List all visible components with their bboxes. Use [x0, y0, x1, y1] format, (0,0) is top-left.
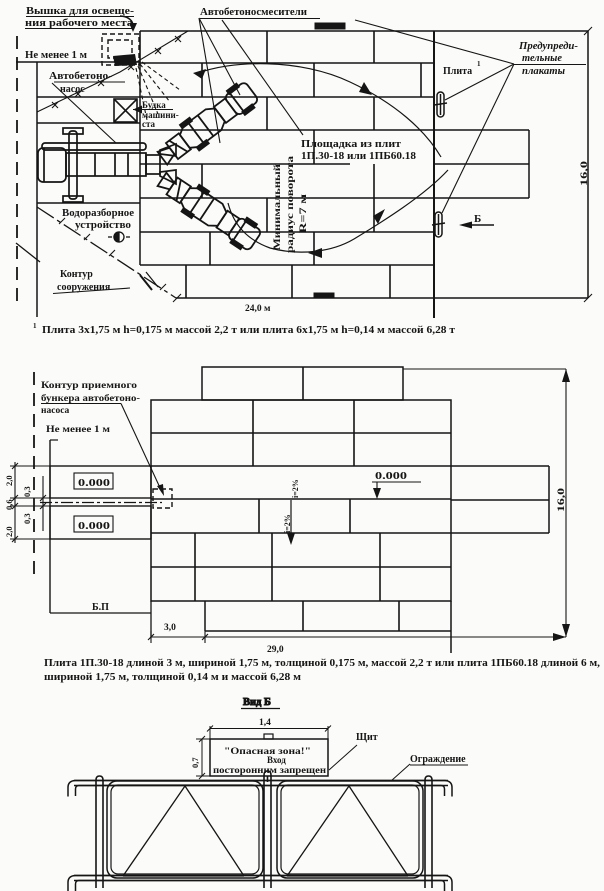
svg-text:3,0: 3,0 — [164, 623, 176, 633]
svg-text:тельные: тельные — [522, 53, 563, 64]
svg-text:Плита 3х1,75 м h=0,175 м массо: Плита 3х1,75 м h=0,175 м массой 2,2 т ил… — [42, 325, 455, 336]
svg-text:насоса: насоса — [41, 406, 70, 416]
svg-text:2,0: 2,0 — [4, 475, 14, 486]
svg-text:Контур приемного: Контур приемного — [41, 381, 137, 391]
svg-text:Площадка из плит: Площадка из плит — [301, 139, 401, 150]
svg-text:Предупреди-: Предупреди- — [518, 41, 578, 52]
svg-text:Контур: Контур — [60, 269, 93, 280]
svg-text:плакаты: плакаты — [522, 66, 565, 77]
svg-text:0,3: 0,3 — [22, 486, 32, 497]
svg-text:0,7: 0,7 — [190, 757, 200, 768]
svg-text:Автобетоносмесители: Автобетоносмесители — [200, 7, 307, 18]
svg-text:сооружения: сооружения — [57, 282, 111, 293]
svg-text:посторонним запрещен: посторонним запрещен — [213, 765, 326, 775]
svg-text:устройство: устройство — [75, 220, 131, 231]
svg-text:радиус поворота: радиус поворота — [286, 156, 296, 253]
svg-text:бункера автобетоно-: бункера автобетоно- — [41, 393, 140, 404]
svg-text:Вид Б: Вид Б — [243, 697, 271, 708]
svg-text:16,0: 16,0 — [580, 161, 590, 186]
svg-text:Щит: Щит — [356, 732, 378, 743]
svg-text:i=2%: i=2% — [291, 479, 300, 498]
svg-text:24,0 м: 24,0 м — [245, 304, 271, 314]
svg-text:Не менее 1 м: Не менее 1 м — [25, 50, 87, 61]
svg-text:16,0: 16,0 — [557, 488, 567, 512]
svg-text:Плита: Плита — [443, 66, 472, 77]
svg-text:Водоразборное: Водоразборное — [62, 208, 135, 219]
svg-text:ния рабочего места: ния рабочего места — [25, 18, 133, 29]
svg-text:Не менее 1 м: Не менее 1 м — [46, 425, 111, 435]
svg-text:0,6: 0,6 — [4, 499, 14, 510]
svg-text:Вышка для освеще-: Вышка для освеще- — [26, 6, 134, 17]
svg-text:Ограждение: Ограждение — [410, 754, 466, 765]
svg-text:Минимальный: Минимальный — [272, 163, 283, 250]
svg-text:шириной 1,75 м, толщиной 0,14: шириной 1,75 м, толщиной 0,14 м и массой… — [44, 672, 301, 683]
svg-text:i=2%: i=2% — [283, 514, 292, 533]
svg-text:1: 1 — [33, 322, 37, 330]
svg-text:0.000: 0.000 — [78, 521, 110, 532]
svg-text:Б: Б — [474, 213, 481, 225]
svg-text:0.000: 0.000 — [78, 478, 110, 489]
svg-text:Б.П: Б.П — [92, 602, 109, 613]
svg-text:1: 1 — [477, 60, 481, 68]
svg-text:Автобетоно-: Автобетоно- — [49, 71, 112, 82]
svg-text:1,4: 1,4 — [259, 718, 271, 728]
svg-text:Будка: Будка — [142, 100, 166, 110]
svg-text:R=7 м: R=7 м — [299, 193, 309, 233]
svg-text:0.000: 0.000 — [375, 471, 407, 482]
svg-text:29,0: 29,0 — [267, 645, 284, 655]
svg-text:Вход: Вход — [267, 755, 286, 765]
svg-text:Плита 1П.30-18 длиной 3 м, шир: Плита 1П.30-18 длиной 3 м, шириной 1,75 … — [44, 658, 601, 669]
svg-text:ста: ста — [142, 119, 156, 129]
svg-text:2,0: 2,0 — [4, 526, 14, 537]
svg-text:1П.30-18 или 1ПБ60.18: 1П.30-18 или 1ПБ60.18 — [301, 151, 416, 162]
svg-text:0,3: 0,3 — [22, 513, 32, 524]
